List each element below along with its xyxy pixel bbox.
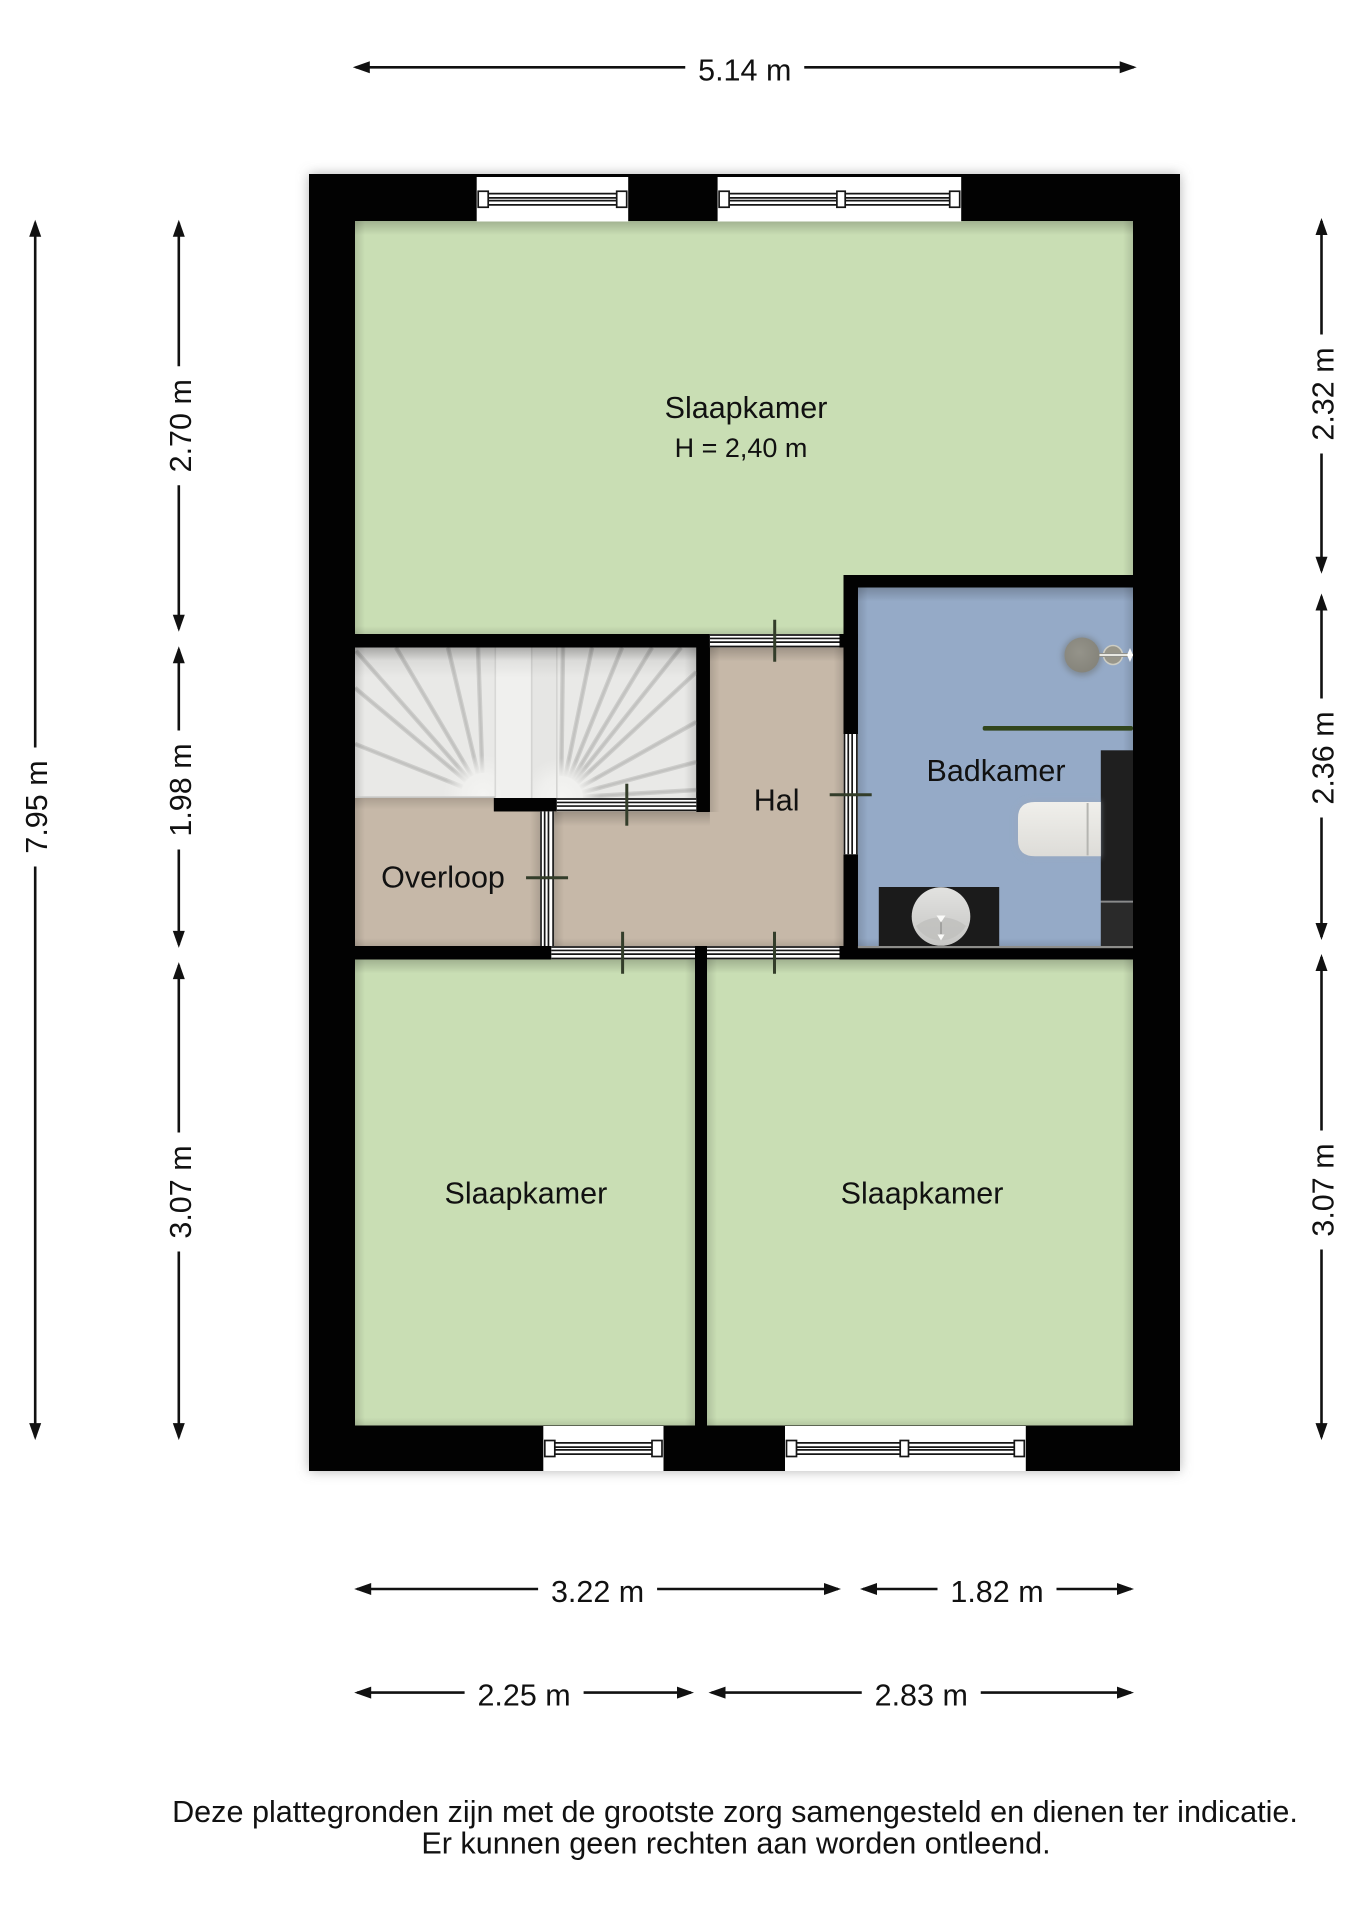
svg-text:Er kunnen geen rechten aan wor: Er kunnen geen rechten aan worden ontlee… [421, 1827, 1050, 1861]
svg-text:1.98 m: 1.98 m [164, 743, 198, 836]
svg-text:3.07 m: 3.07 m [164, 1145, 198, 1238]
svg-text:Badkamer: Badkamer [926, 754, 1065, 788]
svg-text:H = 2,40 m: H = 2,40 m [675, 433, 808, 463]
svg-text:2.25 m: 2.25 m [477, 1679, 570, 1713]
svg-text:2.32 m: 2.32 m [1307, 347, 1341, 440]
svg-text:Slaapkamer: Slaapkamer [665, 391, 828, 425]
svg-text:Deze plattegronden zijn met de: Deze plattegronden zijn met de grootste … [172, 1795, 1298, 1829]
svg-text:Overloop: Overloop [381, 861, 505, 895]
svg-text:1.82 m: 1.82 m [950, 1575, 1043, 1609]
svg-text:Hal: Hal [754, 784, 800, 818]
svg-text:7.95 m: 7.95 m [20, 760, 54, 853]
svg-text:Slaapkamer: Slaapkamer [445, 1177, 608, 1211]
svg-text:3.22 m: 3.22 m [551, 1575, 644, 1609]
svg-text:5.14 m: 5.14 m [698, 53, 791, 87]
svg-text:3.07 m: 3.07 m [1307, 1143, 1341, 1236]
svg-text:2.83 m: 2.83 m [875, 1679, 968, 1713]
svg-text:Slaapkamer: Slaapkamer [841, 1177, 1004, 1211]
svg-text:2.70 m: 2.70 m [164, 379, 198, 472]
svg-text:2.36 m: 2.36 m [1307, 711, 1341, 804]
